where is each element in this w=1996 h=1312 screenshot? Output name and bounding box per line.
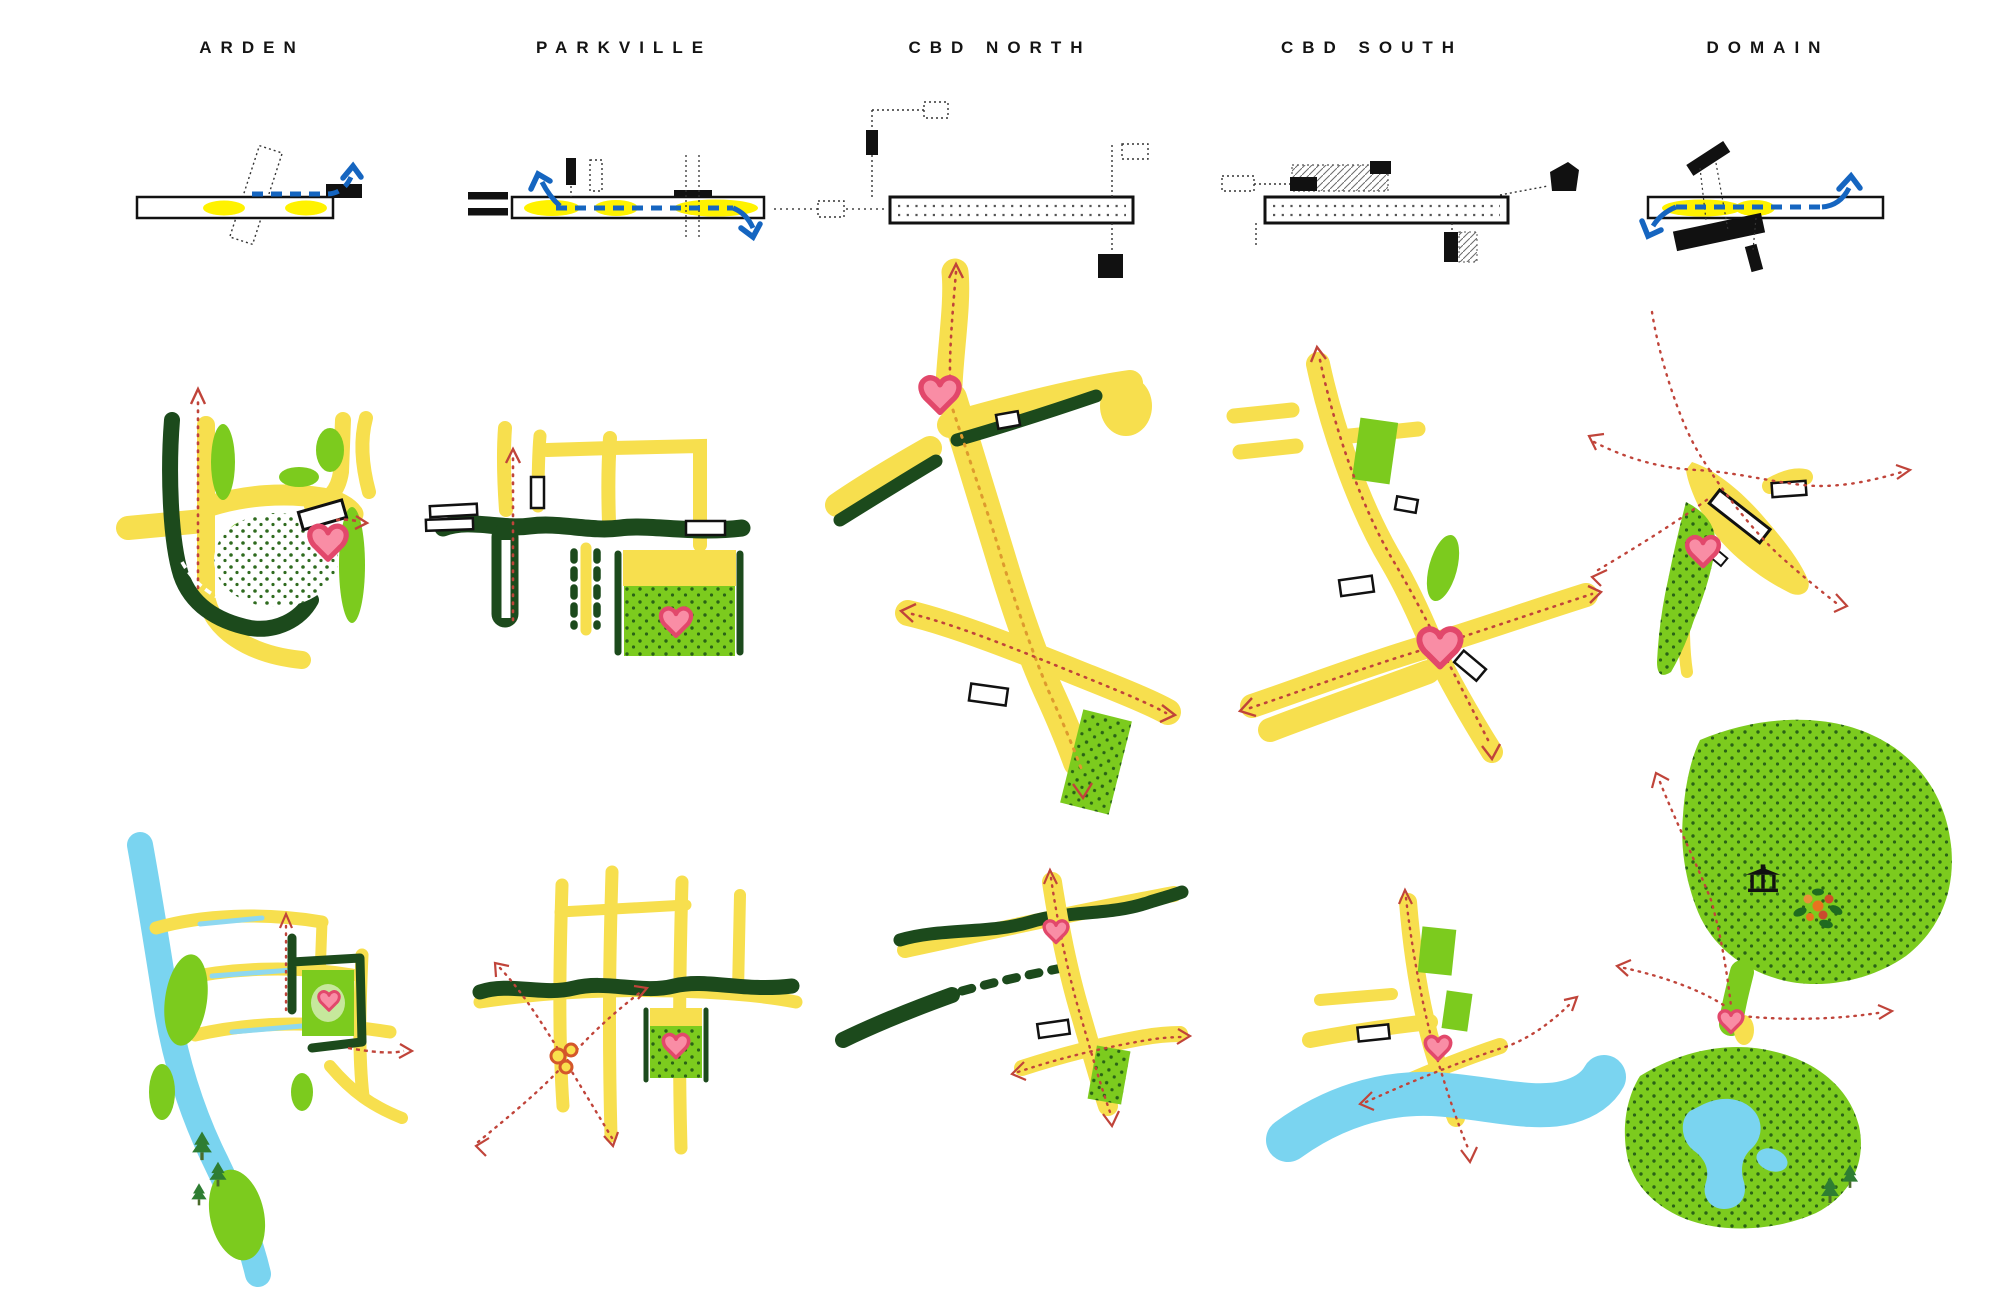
arden-context-map — [140, 845, 412, 1274]
cbd-south-section-diagram — [1222, 161, 1579, 262]
cbd-north-precinct-map — [837, 264, 1175, 815]
cbd-south-precinct-map — [1234, 347, 1601, 759]
desire-line-arrow-icon — [1592, 570, 1607, 586]
building-block — [1098, 254, 1123, 278]
dotted-volume — [1222, 176, 1254, 191]
building-block — [674, 190, 712, 198]
building-block — [1444, 232, 1458, 262]
road — [560, 905, 686, 912]
building-block — [1686, 141, 1730, 176]
building-footprint-icon — [1395, 496, 1418, 512]
arden-precinct-map — [128, 389, 367, 660]
desire-line — [1742, 1012, 1884, 1019]
platform-highlight — [285, 201, 327, 216]
parkville-context-map — [476, 872, 796, 1156]
building-footprint-icon — [1339, 576, 1374, 596]
river — [1288, 1077, 1604, 1140]
station-box — [890, 197, 1133, 223]
diagram-sheet: ARDEN PARKVILLE CBD NORTH CBD SOUTH DOMA… — [0, 0, 1996, 1312]
building-footprint-icon — [430, 504, 478, 517]
desire-line-arrow-icon — [1461, 1147, 1477, 1162]
building-footprint-icon — [1357, 1024, 1389, 1041]
dotted-volume — [1122, 144, 1148, 159]
desire-line-arrow-icon — [1878, 1005, 1892, 1019]
park — [1418, 926, 1457, 975]
station-box — [1265, 197, 1508, 223]
transit-flow-arrow-icon — [1839, 176, 1860, 189]
park — [291, 1073, 313, 1111]
desire-line — [1594, 442, 1902, 486]
building-footprint-icon — [1037, 1020, 1070, 1038]
park — [279, 467, 319, 487]
tree-line — [843, 995, 952, 1040]
tree-line — [480, 983, 792, 992]
road — [1320, 994, 1392, 1000]
desire-line-arrow-icon — [399, 1044, 412, 1058]
building-block — [1745, 244, 1763, 272]
desire-line-arrow-icon — [1896, 465, 1910, 479]
park — [316, 428, 344, 472]
diagram-canvas — [0, 0, 1996, 1312]
building-block — [468, 208, 508, 216]
building-footprint-icon — [531, 477, 544, 508]
park — [211, 424, 235, 500]
domain-precinct-map — [1589, 312, 1910, 675]
desire-line-arrow-icon — [1652, 773, 1669, 788]
tree-line — [900, 892, 1182, 940]
transit-flow-arrow-icon — [343, 166, 361, 178]
parkville-precinct-map — [362, 418, 742, 656]
hatched-volume — [1459, 232, 1477, 262]
cbd-north-section-diagram — [774, 102, 1148, 278]
street-tree-row — [962, 966, 1072, 991]
dotted-link — [1500, 186, 1548, 195]
park — [339, 507, 365, 623]
desire-line — [1624, 968, 1728, 1008]
dotted-link — [1256, 223, 1452, 262]
cbd-south-context-map — [1288, 890, 1604, 1162]
domain-context-map — [1617, 720, 1952, 1229]
desire-line-arrow-icon — [1589, 434, 1604, 450]
road — [650, 1008, 702, 1026]
platform-highlight — [524, 200, 580, 216]
building-block — [1290, 177, 1317, 191]
building-footprint-icon — [686, 521, 725, 535]
road — [1100, 376, 1152, 436]
park — [149, 1064, 175, 1120]
building-footprint-icon — [996, 411, 1020, 429]
dotted-volume — [818, 201, 844, 217]
parkville-section-diagram — [468, 155, 764, 240]
transit-flow-arrow-icon — [1642, 221, 1661, 236]
road — [362, 418, 369, 492]
platform-highlight — [203, 201, 245, 216]
dotted-volume — [590, 160, 602, 191]
building-footprint-icon — [969, 684, 1008, 706]
building-footprint-icon — [426, 518, 473, 531]
building-block — [866, 130, 878, 155]
domain-section-diagram — [1642, 141, 1883, 272]
park — [1421, 532, 1466, 605]
building-block — [1550, 162, 1579, 191]
park — [1441, 990, 1472, 1031]
building-block — [566, 158, 576, 185]
road — [320, 922, 322, 976]
road — [504, 428, 506, 510]
cbd-north-context-map — [843, 870, 1190, 1126]
arden-section-diagram — [137, 146, 362, 245]
road — [1234, 410, 1296, 452]
road — [952, 398, 1078, 762]
road — [547, 448, 612, 450]
tree-icon — [191, 1183, 206, 1205]
desire-line-arrow-icon — [1564, 997, 1577, 1011]
building-block — [468, 192, 508, 200]
building-block — [1370, 161, 1391, 174]
road — [738, 895, 740, 992]
dotted-volume — [924, 102, 948, 118]
road — [623, 550, 736, 586]
